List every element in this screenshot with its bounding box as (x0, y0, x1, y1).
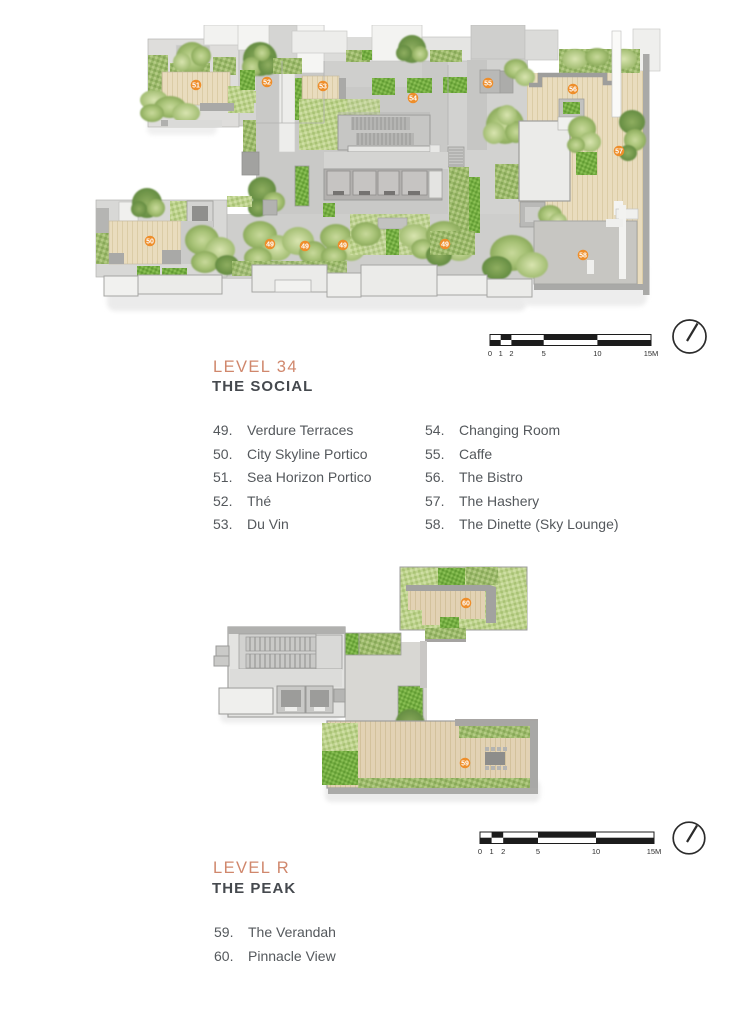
svg-text:2: 2 (501, 847, 505, 856)
svg-text:5: 5 (536, 847, 540, 856)
svg-text:10: 10 (592, 847, 600, 856)
svg-text:55: 55 (484, 81, 492, 88)
svg-text:49: 49 (441, 242, 449, 249)
svg-text:57: 57 (615, 149, 623, 156)
svg-text:60: 60 (462, 601, 470, 608)
svg-text:56: 56 (569, 87, 577, 94)
svg-text:1: 1 (499, 349, 503, 358)
svg-text:1: 1 (490, 847, 494, 856)
svg-text:58: 58 (579, 253, 587, 260)
svg-text:53: 53 (319, 84, 327, 91)
svg-text:2: 2 (509, 349, 513, 358)
svg-text:0: 0 (488, 349, 492, 358)
svg-text:10: 10 (593, 349, 601, 358)
svg-text:5: 5 (542, 349, 546, 358)
svg-text:54: 54 (409, 96, 417, 103)
svg-text:51: 51 (192, 83, 200, 90)
svg-text:15M: 15M (647, 847, 662, 856)
svg-text:52: 52 (263, 80, 271, 87)
svg-text:0: 0 (478, 847, 482, 856)
svg-text:59: 59 (461, 761, 469, 768)
svg-text:50: 50 (146, 239, 154, 246)
svg-text:49: 49 (266, 242, 274, 249)
svg-text:49: 49 (301, 244, 309, 251)
svg-text:15M: 15M (644, 349, 658, 358)
svg-text:49: 49 (339, 243, 347, 250)
